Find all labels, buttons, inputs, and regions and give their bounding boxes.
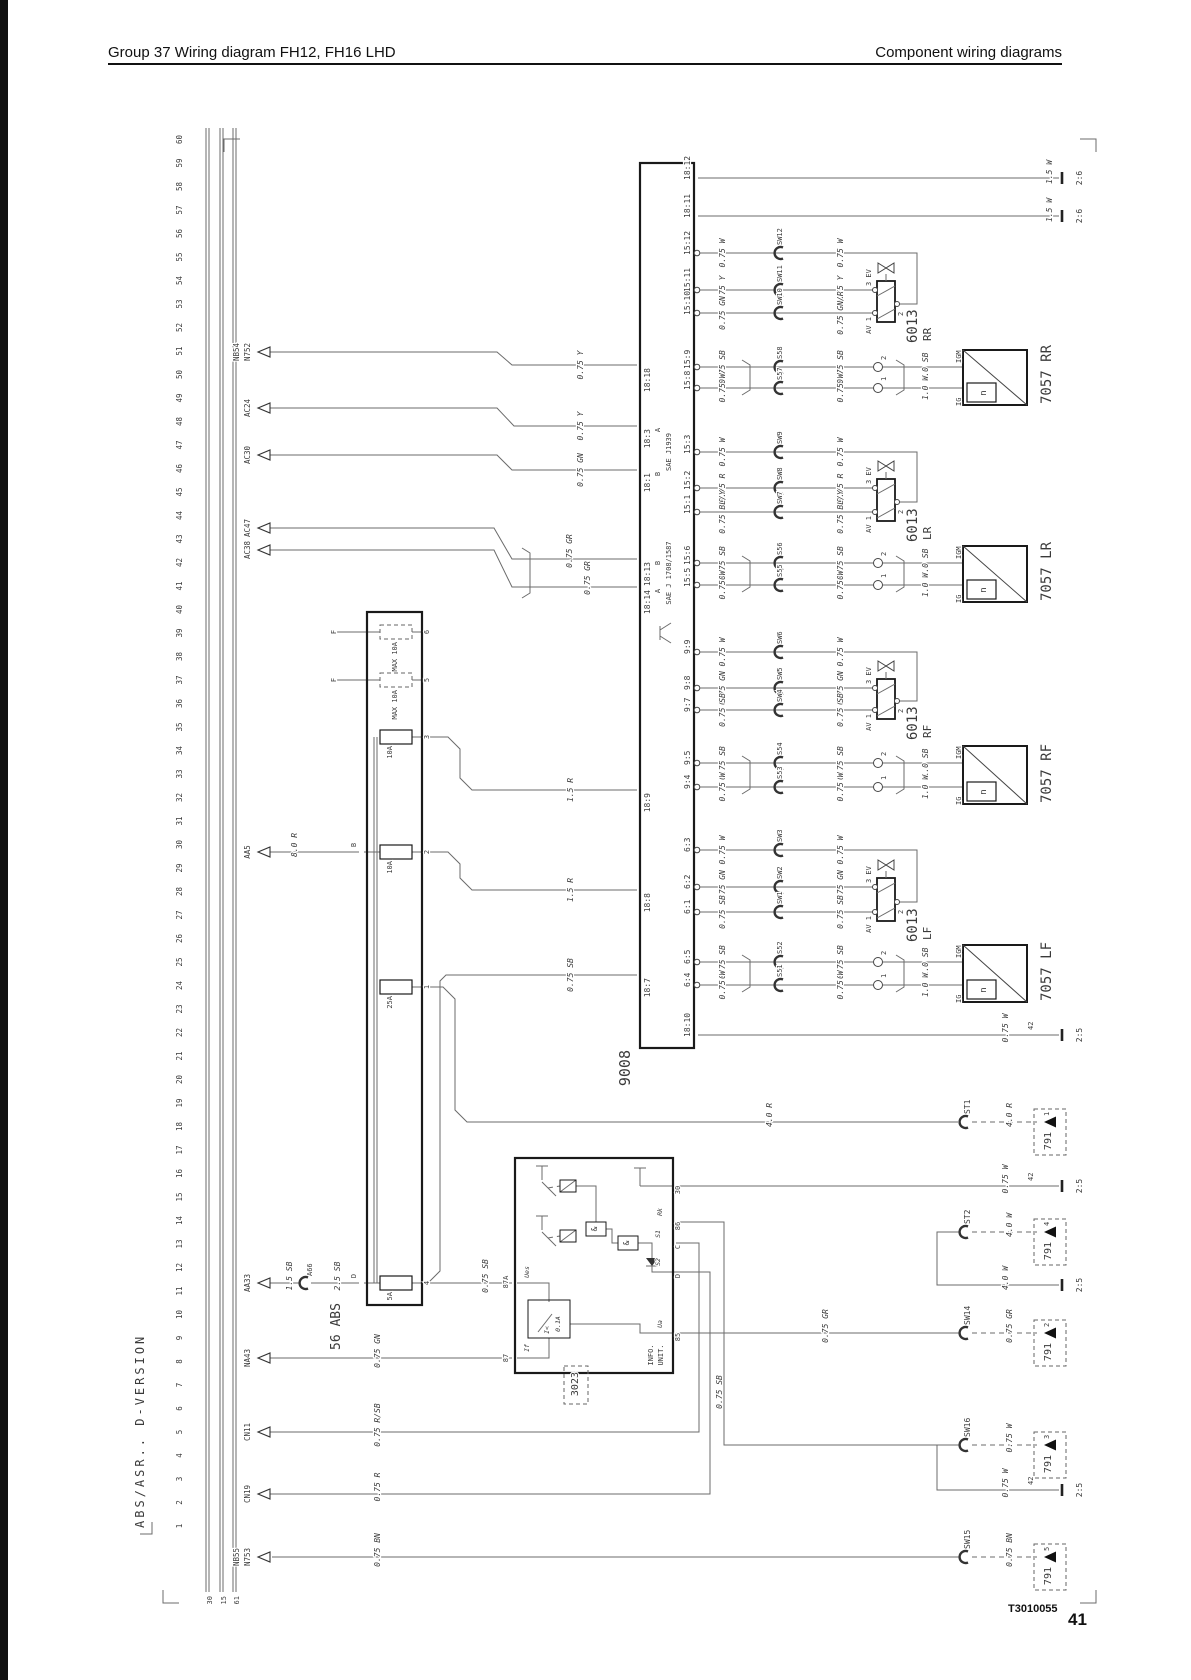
diagram-label: 9008 (616, 1050, 634, 1086)
ruler-number: 32 (175, 793, 184, 802)
diagram-label: 4 (423, 1281, 431, 1285)
pin-circle (895, 302, 900, 307)
wire (224, 139, 240, 152)
diagram-label: 42 (1027, 1022, 1035, 1030)
diagram-label: 18:14 (643, 590, 652, 614)
diagram-label: SW15 (963, 1530, 972, 1549)
component-id: 7057 RF (1039, 744, 1055, 803)
inline-connector-icon (960, 1116, 968, 1128)
diagram-label: Ua (656, 1320, 664, 1328)
wire (542, 1232, 556, 1246)
diagram-label: 0.75 SB (481, 1259, 490, 1293)
ruler-number: 29 (175, 863, 184, 872)
diagram-label: B (350, 843, 358, 847)
diagram-label: ST1 (963, 1099, 972, 1114)
ruler-number: 60 (175, 135, 184, 145)
diagram-label: 0.75 W (836, 636, 845, 666)
offpage-connector-arrow (258, 545, 270, 555)
diagram-label: D (350, 1274, 358, 1278)
offpage-connector-label: CN19 (243, 1485, 252, 1503)
diagram-label: INFO. (647, 1344, 655, 1365)
diagram-label: 0.75 GN/R (836, 291, 845, 335)
valve-coil-icon (886, 661, 894, 671)
connector-id: 791 (1043, 1455, 1054, 1473)
ruler-number: 35 (175, 722, 184, 731)
diagram-label: 25A (386, 995, 394, 1008)
wire (163, 1590, 179, 1603)
diagram-label: 0.75 W (718, 372, 727, 402)
pin-circle (694, 560, 700, 566)
diagram-label: n (979, 987, 989, 992)
component-id: 7057 LR (1039, 541, 1055, 601)
diagram-label: 3 (423, 735, 431, 739)
pin-circle (873, 686, 878, 691)
diagram-label: 18:1 (643, 473, 652, 492)
ecu-pin-number: 6:3 (683, 837, 692, 852)
ecu-pin-number: 9:7 (683, 697, 692, 712)
diagram-label: F (330, 678, 338, 682)
ecu-pin-number: 9:9 (683, 639, 692, 654)
diagram-label: 0.75 W (1005, 1422, 1014, 1452)
wire (548, 1186, 560, 1188)
offpage-connector-label: CN11 (243, 1423, 252, 1441)
connector-id: SW2 (776, 866, 784, 879)
diagram-label: 2 (897, 910, 905, 914)
pin-circle (873, 311, 878, 316)
ruler-number: 19 (175, 1098, 184, 1107)
ruler-number: 34 (175, 746, 184, 756)
diagram-label: 1.0 W (921, 375, 930, 400)
ruler-number: 4 (175, 1453, 184, 1458)
wiring-diagram: 3015611234567891011121314151617181920212… (0, 0, 1191, 1680)
connector-id: SW4 (776, 689, 784, 702)
ruler-number: 8 (175, 1359, 184, 1364)
diagram-label: 0.75 GN (576, 453, 585, 487)
ruler-number: 26 (175, 934, 184, 944)
wire (937, 1445, 1059, 1490)
ruler-number: 55 (175, 252, 184, 261)
wire (877, 508, 895, 518)
diagram-label: 1.0 SB (921, 947, 930, 976)
diagram-label: 0.75 Y (576, 349, 585, 379)
ruler-number: 24 (175, 981, 184, 991)
ecu-pin-number: 15:6 (683, 546, 692, 565)
wire (270, 528, 637, 559)
component-id: 7057 RR (1039, 344, 1055, 404)
ruler-number: 38 (175, 652, 184, 662)
pin-circle (694, 959, 700, 965)
wire (560, 1230, 576, 1242)
diagram-label: MAX 10A (391, 689, 399, 719)
ruler-number: 10 (175, 1310, 184, 1320)
diagram-label: 18:9 (643, 793, 652, 812)
diagram-label: 2:5 (1075, 1028, 1084, 1043)
diagram-label: IG (955, 995, 963, 1003)
wire (877, 309, 895, 319)
ruler-number: 54 (175, 276, 184, 286)
pin-circle (694, 582, 700, 588)
diagram-label: 30 (674, 1186, 682, 1194)
twisted-pair-mark (896, 556, 904, 592)
diagram-label: S1 (654, 1230, 662, 1238)
diagram-label: IG (955, 797, 963, 805)
pin-circle (873, 708, 878, 713)
twisted-pair-mark (896, 360, 904, 395)
diagram-label: 0.75 W (718, 834, 727, 864)
harness-arrow-icon (1044, 1117, 1056, 1128)
valve-coil-icon (886, 461, 894, 471)
diagram-label: 1.0 W (921, 972, 930, 997)
diagram-label: S2 (654, 1258, 662, 1266)
diagram-label: 0.75 W (836, 237, 845, 267)
diagram-label: IG (955, 398, 963, 406)
wire (660, 623, 671, 630)
diagram-label: 1.5 SB (285, 1261, 294, 1290)
ruler-number: 23 (175, 1004, 184, 1013)
connector-id: 791 (1043, 1567, 1054, 1585)
wire (698, 850, 917, 902)
pin-circle (694, 364, 700, 370)
diagram-label: 1.5 R (566, 778, 575, 802)
diagram-label: 0.75 W (836, 372, 845, 402)
ruler-number: 37 (175, 675, 184, 684)
ecu-pin-number: 15:3 (683, 435, 692, 454)
pin-circle (694, 485, 700, 491)
diagram-label: 18:12 (683, 156, 692, 180)
wire (877, 286, 895, 296)
wire (963, 546, 1027, 602)
diagram-label: SW16 (963, 1418, 972, 1437)
diagram-label: 2:6 (1075, 209, 1084, 224)
pin-circle (895, 900, 900, 905)
component-position: RF (921, 725, 934, 738)
pin-circle (873, 885, 878, 890)
diagram-label: 0.75 SB (566, 958, 575, 992)
diagram-label: 1 (880, 974, 888, 978)
ruler-number: 31 (175, 816, 184, 825)
diagram-label: 0.75 BL/Y (718, 489, 727, 534)
diagram-label: 0.75 BN (373, 1533, 382, 1567)
ruler-number: 45 (175, 487, 184, 496)
diagram-label: 3023 (570, 1372, 581, 1396)
offpage-connector-label: AC30 (243, 445, 252, 464)
wire (877, 883, 895, 893)
diagram-label: 2:5 (1075, 1278, 1084, 1293)
diagram-label: 2 (423, 850, 431, 854)
valve-coil-icon (886, 860, 894, 870)
pin-circle (873, 288, 878, 293)
diagram-label: MAX 10A (391, 641, 399, 671)
diagram-label: 0.75 GR (565, 534, 574, 568)
ruler-number: 57 (175, 205, 184, 214)
pin-circle (895, 500, 900, 505)
diagram-label: 85 (674, 1333, 682, 1341)
component-id: 7057 LF (1039, 942, 1055, 1001)
ruler-number: 21 (175, 1051, 184, 1060)
diagram-label: AV 1 (865, 516, 873, 533)
pin-circle (694, 884, 700, 890)
ecu-pin-number: 15:11 (683, 268, 692, 292)
diagram-label: 10A (386, 745, 394, 758)
diagram-label: 4.0 R (1005, 1103, 1014, 1127)
connector-id: S54 (776, 742, 784, 755)
offpage-connector-label: N753 (243, 1548, 252, 1566)
diagram-label: SAE J 1708/1587 (665, 541, 673, 604)
pin-circle (874, 384, 883, 393)
connector-id: SW7 (776, 491, 784, 504)
diagram-label: 0.75 W (718, 436, 727, 466)
pin-circle (694, 784, 700, 790)
connector-id: S57 (776, 367, 784, 380)
pin-circle (694, 847, 700, 853)
twisted-pair-mark (896, 955, 904, 992)
ecu-pin-number: 15:2 (683, 471, 692, 490)
diagram-label: 87 (502, 1354, 510, 1362)
diagram-label: 1 (880, 574, 888, 578)
ruler-number: 28 (175, 887, 184, 897)
diagram-label: 0.75 Y (576, 410, 585, 440)
ruler-number: 53 (175, 299, 184, 308)
wire (660, 636, 671, 643)
diagram-label: A66 (306, 1263, 314, 1276)
component-id: 6013 (905, 309, 921, 343)
pin-circle (694, 760, 700, 766)
diagram-label: 18:13 (643, 562, 652, 586)
ecu-pin-number: 6:2 (683, 874, 692, 889)
diagram-label: 10A (386, 860, 394, 873)
connector-id: SW9 (776, 431, 784, 444)
harness-arrow-icon (1044, 1440, 1056, 1451)
wire (425, 737, 637, 790)
component-box (380, 673, 412, 687)
diagram-label: 2:5 (1075, 1483, 1084, 1498)
offpage-connector-arrow (258, 1552, 270, 1562)
wire (576, 1186, 596, 1222)
diagram-label: 4.0 W (1001, 1265, 1010, 1290)
diagram-label: 0.75 R (373, 1472, 382, 1501)
connector-id: S51 (776, 964, 784, 977)
component-box (380, 730, 412, 744)
diagram-label: 0.75 SB (836, 693, 845, 727)
wire (428, 975, 637, 1283)
offpage-connector-label: N752 (243, 343, 252, 361)
connector-id: S56 (776, 542, 784, 555)
wire (517, 1283, 549, 1302)
diagram-label: 1 (423, 985, 431, 989)
diagram-label: IGM (955, 746, 963, 759)
offpage-connector-arrow (258, 450, 270, 460)
connector-id: SW6 (776, 631, 784, 644)
diagram-label: 0.75 SB (836, 895, 845, 929)
diagram-label: 0.75 GR (821, 1309, 830, 1343)
connector-pin-number: 4 (1043, 1222, 1051, 1226)
connector-id: SW3 (776, 829, 784, 842)
valve-coil-icon (886, 263, 894, 273)
diagram-label: 3 EV (865, 666, 873, 684)
wire (877, 684, 895, 694)
harness-arrow-icon (1044, 1328, 1056, 1339)
ruler-number: 51 (175, 346, 184, 355)
diagram-label: 3 EV (865, 865, 873, 883)
ruler-number: 50 (175, 370, 184, 380)
diagram-label: 2:6 (1075, 171, 1084, 186)
diagram-label: B (654, 561, 662, 565)
ruler-number: 15 (175, 1192, 184, 1201)
wire (963, 746, 1027, 804)
diagram-label: 0.75 W (718, 569, 727, 599)
connector-pin-number: 5 (1043, 1547, 1051, 1551)
wire (425, 987, 958, 1122)
section-title: ABS/ASR.. D-VERSION (133, 1334, 147, 1528)
diagram-label: 2.5 SB (333, 1261, 342, 1290)
diagram-label: 0.75 W (1001, 1012, 1010, 1042)
diagram-label: I< (543, 1326, 551, 1334)
ruler-number: 36 (175, 699, 184, 709)
document-page: Group 37 Wiring diagram FH12, FH16 LHD C… (0, 0, 1191, 1680)
ecu-pin-number: 15:1 (683, 495, 692, 514)
diagram-label: 1.5 R (566, 878, 575, 902)
diagram-label: 0.75 W (718, 969, 727, 999)
pin-circle (694, 649, 700, 655)
bus-label: 15 (220, 1596, 228, 1604)
ecu-pin-number: 9:4 (683, 774, 692, 789)
wire (270, 550, 637, 587)
ruler-number: 48 (175, 417, 184, 427)
wire (937, 1232, 1059, 1285)
diagram-label: 18:3 (643, 429, 652, 448)
connector-id: SW10 (776, 288, 784, 305)
diagram-label: C (674, 1245, 682, 1249)
diagram-label: 0.75 SB (718, 895, 727, 929)
ecu-pin-number: 15:8 (683, 371, 692, 390)
twisted-pair-mark (742, 360, 750, 395)
twisted-pair-mark (742, 756, 750, 794)
component-position: LR (921, 526, 934, 540)
diagram-label: AV 1 (865, 916, 873, 933)
inline-connector-icon (960, 1551, 968, 1563)
diagram-label: 0.75 SB (718, 693, 727, 727)
wire (698, 452, 917, 502)
page-number: 41 (1068, 1610, 1087, 1630)
ruler-number: 20 (175, 1075, 184, 1085)
pin-circle (694, 385, 700, 391)
ruler-number: 3 (175, 1477, 184, 1482)
diagram-label: Ues (523, 1266, 531, 1278)
diagram-label: 1.0 W (921, 774, 930, 799)
offpage-connector-arrow (258, 523, 270, 533)
inline-connector-icon (960, 1327, 968, 1339)
pin-circle (694, 982, 700, 988)
ecu-pin-number: 15:10 (683, 291, 692, 315)
ruler-number: 5 (175, 1430, 184, 1435)
ruler-number: 46 (175, 464, 184, 474)
ruler-number: 1 (175, 1524, 184, 1529)
connector-id: S58 (776, 346, 784, 359)
harness-arrow-icon (1044, 1227, 1056, 1238)
ruler-number: 58 (175, 182, 184, 192)
pin-circle (694, 509, 700, 515)
diagram-label: 0.75 W (836, 969, 845, 999)
pin-circle (694, 685, 700, 691)
diagram-label: 0.75 GN (373, 1334, 382, 1368)
ecu-pin-number: 6:5 (683, 949, 692, 964)
wire (877, 706, 895, 716)
pin-circle (694, 287, 700, 293)
component-id: 6013 (905, 908, 921, 942)
connector-id: S53 (776, 766, 784, 779)
diagram-label: 2 (880, 356, 888, 360)
diagram-label: ST2 (963, 1209, 972, 1224)
ruler-number: 40 (175, 605, 184, 615)
diagram-label: A (654, 427, 662, 432)
diagram-label: 2 (880, 552, 888, 556)
connector-pin-number: 3 (1043, 1435, 1051, 1439)
connector-id: S52 (776, 941, 784, 954)
offpage-connector-label: AA5 (243, 845, 252, 859)
diagram-label: 1.0 SB (921, 748, 930, 777)
ecu-pin-number: 15:9 (683, 350, 692, 369)
diagram-label: 0.75 GR (583, 561, 592, 595)
diagram-label: 0.1A (554, 1316, 562, 1332)
pin-circle (873, 510, 878, 515)
harness-arrow-icon (1044, 1552, 1056, 1563)
diagram-label: 2 (897, 510, 905, 514)
diagram-label: D (674, 1274, 682, 1278)
diagram-label: 0.75 W (836, 569, 845, 599)
ruler-number: 30 (175, 840, 184, 850)
pin-circle (874, 981, 883, 990)
connector-pin-number: 1 (1043, 1112, 1051, 1116)
diagram-label: 6 (423, 630, 431, 634)
component-box (380, 625, 412, 639)
diagram-label: 18:11 (683, 194, 692, 218)
diagram-label: IGM (955, 546, 963, 559)
diagram-label: 0.75 R/SB (373, 1403, 382, 1447)
diagram-label: 2 (897, 709, 905, 713)
wire (1080, 1590, 1096, 1603)
diagram-label: 0.75 W (836, 771, 845, 801)
ruler-number: 9 (175, 1336, 184, 1341)
diagram-label: 42 (1027, 1477, 1035, 1485)
component-box (380, 980, 412, 994)
diagram-label: 4.0 W (1005, 1212, 1014, 1237)
pin-circle (694, 250, 700, 256)
ruler-number: 22 (175, 1028, 184, 1037)
ruler-number: 13 (175, 1239, 184, 1248)
component-id: 6013 (905, 706, 921, 740)
twisted-pair-mark (742, 955, 750, 992)
diagram-label: & (590, 1226, 599, 1231)
ruler-number: 7 (175, 1383, 184, 1388)
offpage-connector-arrow (258, 403, 270, 413)
diagram-label: 8.0 R (290, 833, 299, 857)
diagram-label: 0.75 W (836, 436, 845, 466)
offpage-connector-arrow (258, 1278, 270, 1288)
wire (698, 253, 917, 304)
diagram-label: 1.5 W (1045, 159, 1054, 184)
pin-circle (874, 581, 883, 590)
diagram-label: 2:5 (1075, 1179, 1084, 1194)
offpage-connector-label: AC47 (243, 519, 252, 537)
diagram-label: 86 (674, 1222, 682, 1230)
offpage-connector-label: NB54 (232, 342, 241, 361)
diagram-label: 87A (502, 1275, 510, 1288)
diagram-label: 0.75 BN (1005, 1533, 1014, 1567)
ruler-number: 17 (175, 1145, 184, 1154)
ruler-number: 59 (175, 158, 184, 167)
diagram-label: n (979, 789, 989, 794)
connector-id: 791 (1043, 1242, 1054, 1260)
